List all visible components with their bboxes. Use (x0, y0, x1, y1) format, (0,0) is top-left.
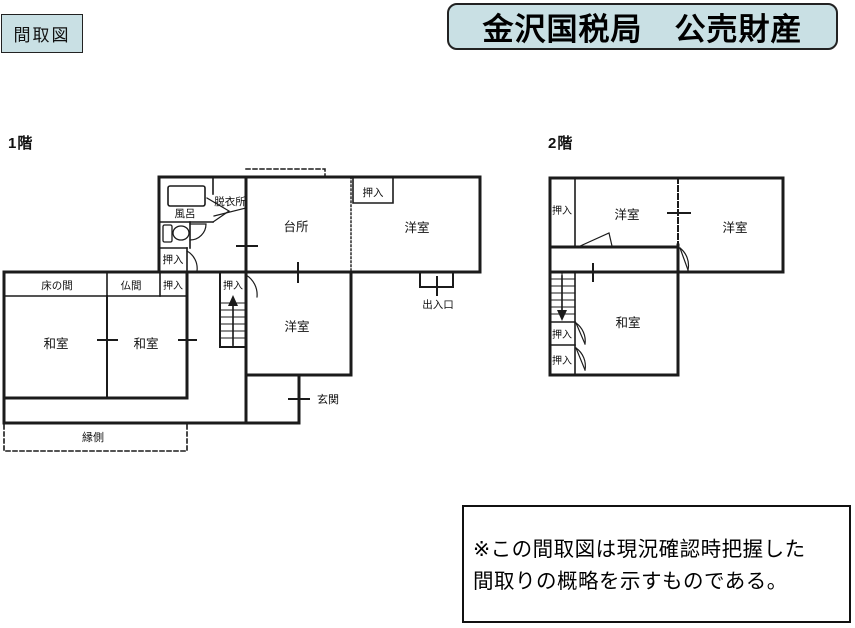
floor2-room-labels: 押入 洋室 洋室 和室 押入 押入 (552, 204, 748, 367)
room-label-genkan: 玄関 (317, 392, 339, 406)
room-label-closet-bath: 押入 (163, 253, 184, 266)
room-label-closet-nw: 押入 (552, 204, 572, 217)
floor1-label: 1階 (8, 134, 33, 152)
room-label-western-w: 洋室 (614, 207, 639, 222)
disclaimer-note: ※この間取図は現況確認時把握した 間取りの概略を示すものである。 (462, 505, 851, 623)
room-label-tokonoma: 床の間 (41, 279, 73, 292)
room-label-washitsu-c: 和室 (133, 336, 158, 351)
room-label-closet-stair: 押入 (223, 279, 243, 292)
disclaimer-line-2: 間取りの概略を示すものである。 (473, 566, 843, 598)
room-label-dressing: 脱衣所 (214, 195, 246, 208)
room-label-bath: 風呂 (175, 208, 196, 220)
disclaimer-line-1: ※この間取図は現況確認時把握した (473, 534, 843, 566)
room-label-closet-kitchen: 押入 (363, 186, 384, 199)
room-label-closet-row: 押入 (163, 279, 183, 292)
toilet-icon (163, 225, 189, 242)
floor1-walls (4, 177, 480, 423)
room-label-western-ne: 洋室 (404, 220, 429, 235)
floor2-label: 2階 (548, 134, 573, 152)
floor2-door-arcs (576, 233, 688, 370)
room-label-washitsu-2f: 和室 (615, 315, 640, 330)
bathtub-icon (168, 186, 205, 206)
room-label-engawa: 縁側 (82, 430, 104, 444)
room-label-western-mid: 洋室 (284, 319, 309, 334)
room-label-closet-mid: 押入 (552, 328, 572, 341)
room-label-kitchen: 台所 (283, 219, 308, 234)
room-label-butsuma: 仏間 (121, 280, 142, 292)
floor2-walls (550, 178, 783, 375)
floor2-plan (550, 178, 783, 375)
room-label-washitsu-w: 和室 (43, 336, 68, 351)
room-label-closet-s: 押入 (552, 354, 572, 367)
room-label-doorway: 出入口 (422, 298, 454, 311)
room-label-western-e: 洋室 (722, 220, 747, 235)
floor1-plan (4, 169, 480, 451)
floor1-dashed-canopy (246, 169, 325, 176)
